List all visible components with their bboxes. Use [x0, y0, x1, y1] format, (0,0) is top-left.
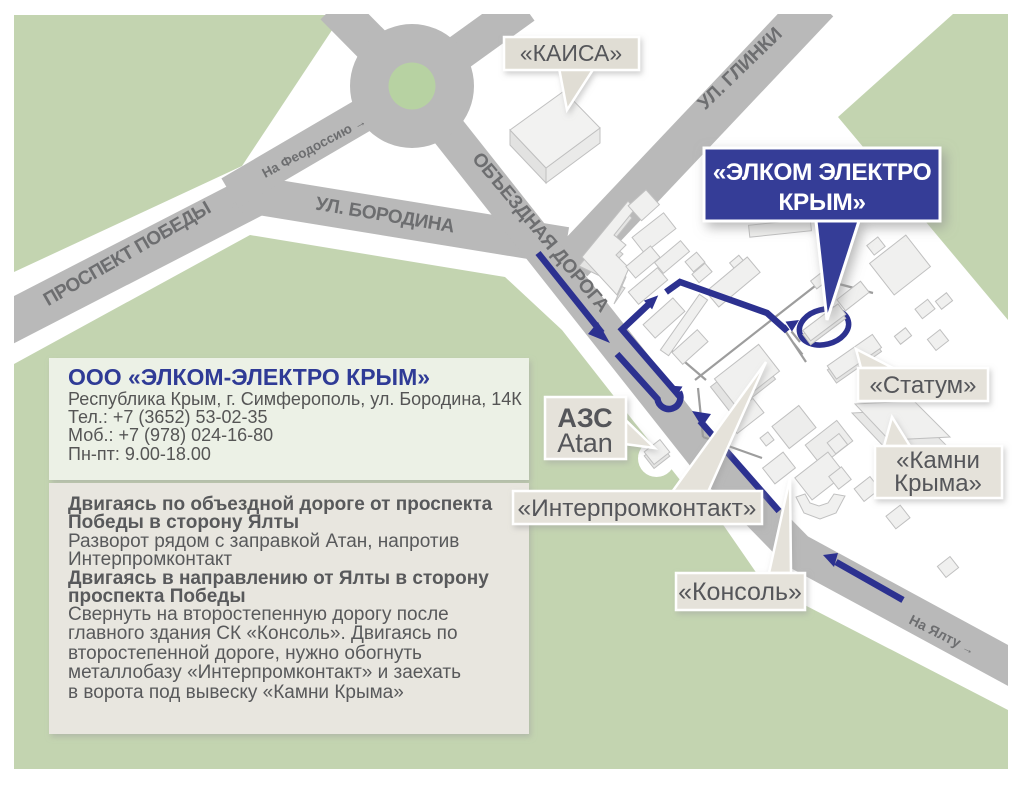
- svg-text:Крыма»: Крыма»: [894, 470, 982, 497]
- svg-text:Atan: Atan: [557, 428, 613, 458]
- svg-text:«ЭЛКОМ ЭЛЕКТРО: «ЭЛКОМ ЭЛЕКТРО: [713, 159, 932, 186]
- svg-text:«КАИСА»: «КАИСА»: [520, 40, 622, 66]
- svg-text:«Интерпромконтакт»: «Интерпромконтакт»: [518, 495, 757, 522]
- svg-text:КРЫМ»: КРЫМ»: [778, 189, 865, 216]
- svg-text:«Статум»: «Статум»: [869, 372, 976, 399]
- svg-text:«Консоль»: «Консоль»: [678, 578, 802, 606]
